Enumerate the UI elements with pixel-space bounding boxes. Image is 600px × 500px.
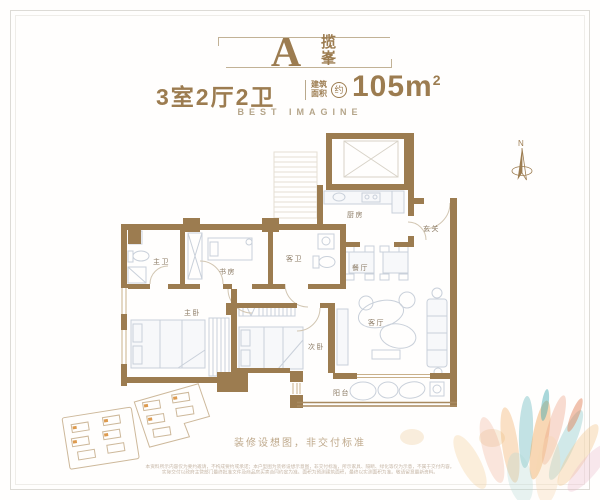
- disclaimer: 本资料所示内容仅为要约邀请，不构成要约或承诺；本户型图为装修设想示意图，非交付标…: [82, 465, 519, 476]
- room-label-master-bath: 主卫: [153, 257, 170, 266]
- room-label-guest-bath: 客卫: [286, 254, 303, 263]
- furniture-layer: [128, 141, 447, 400]
- room-label-second-bedroom: 次卧: [308, 342, 325, 351]
- plan-note: 装修设想图，非交付标准: [150, 434, 450, 449]
- site-sketch-decoration: [62, 383, 213, 470]
- room-label-living-room: 客厅: [368, 318, 385, 327]
- floor-plan: 厨房 玄关 餐厅 客卫 书房 主卫 主卧 次卧 客厅 阳台 N: [0, 0, 600, 500]
- room-label-study: 书房: [219, 267, 236, 276]
- compass-north-label: N: [518, 139, 524, 148]
- room-label-entry: 玄关: [423, 224, 440, 233]
- stair-hatch: [274, 152, 317, 218]
- room-label-master-bedroom: 主卧: [184, 308, 201, 317]
- room-label-balcony: 阳台: [333, 388, 350, 397]
- room-label-kitchen: 厨房: [347, 210, 364, 219]
- room-label-dining: 餐厅: [352, 263, 369, 272]
- disclaimer-line-2: 实际交付以政府主管部门最终批准文件及商品房买卖合同约定为准。面积为预测建筑面积，…: [82, 470, 519, 475]
- compass: N: [512, 139, 532, 180]
- floorplan-page: A 揽 峯 3室2厅2卫 建筑 面积 约 105m2 BEST IMAGINE: [0, 0, 600, 500]
